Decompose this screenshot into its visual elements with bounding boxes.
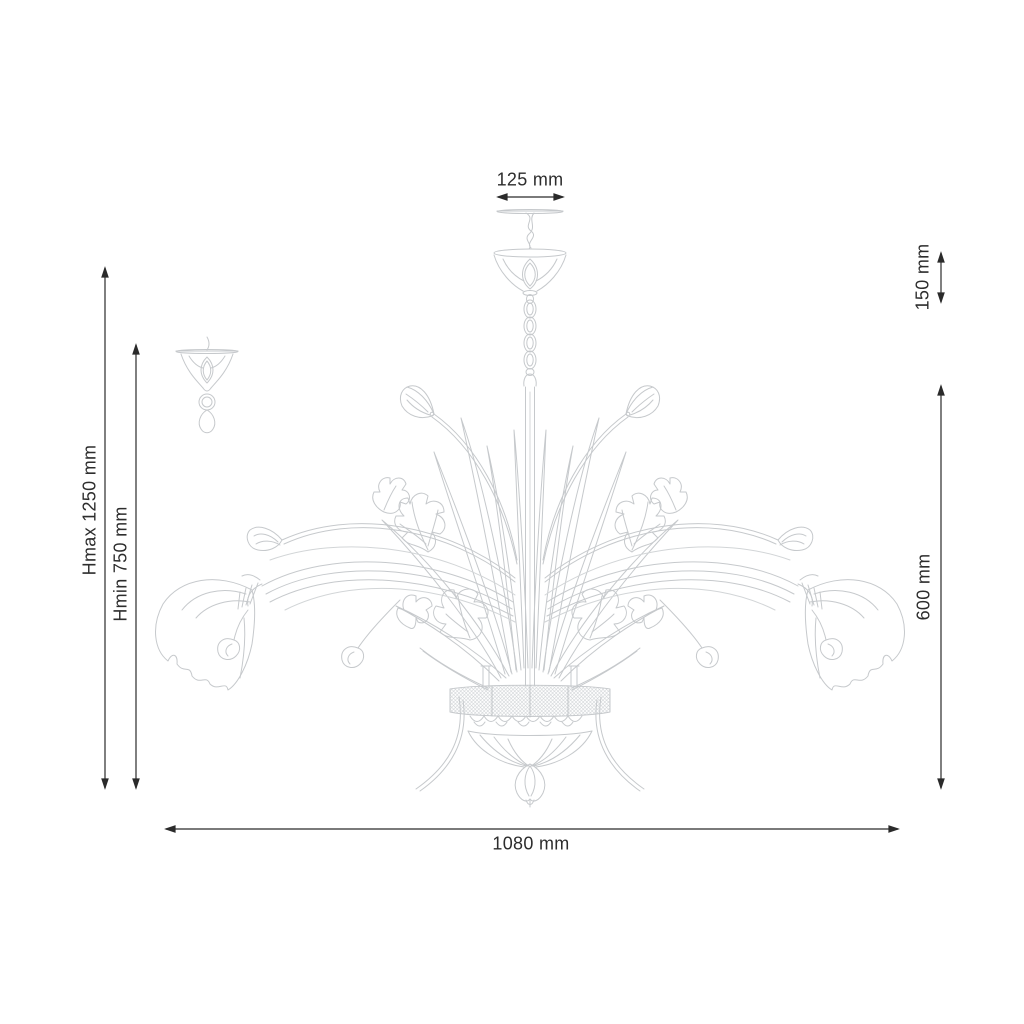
dim-label-canopy-width: 125 mm — [497, 170, 564, 191]
canopy-detail-inset — [176, 337, 238, 433]
dim-label-min-height: Hmin 750 mm — [111, 506, 132, 621]
dim-label-canopy-height: 150 mm — [913, 244, 934, 311]
bottom-basket — [450, 685, 610, 807]
dim-line-canopy-height — [938, 253, 944, 302]
technical-drawing-canvas: 125 mm 150 mm 600 mm Hmax 1250 mm Hmin 7… — [0, 0, 1024, 1024]
right-floral-arms — [539, 386, 904, 791]
hanging-system — [494, 210, 566, 387]
dim-label-body-height: 600 mm — [914, 554, 935, 621]
dim-line-canopy-width — [498, 194, 563, 200]
left-floral-arms — [156, 386, 521, 791]
dim-line-max-height — [102, 268, 108, 788]
center-column — [514, 387, 546, 686]
chandelier-line-drawing — [0, 0, 1024, 1024]
dim-line-body-height — [938, 386, 944, 788]
dim-label-total-width: 1080 mm — [492, 834, 569, 855]
dim-line-min-height — [133, 345, 139, 788]
dim-label-max-height: Hmax 1250 mm — [80, 445, 101, 576]
dim-line-total-width — [166, 826, 898, 832]
